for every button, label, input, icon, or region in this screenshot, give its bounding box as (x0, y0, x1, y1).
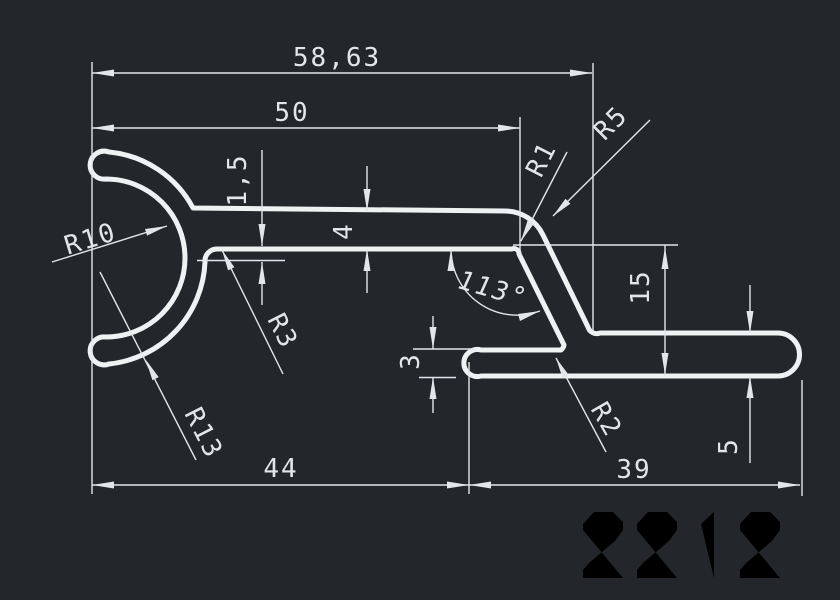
dim-label-base-right: 39 (616, 455, 651, 485)
dim-upper-width: 50 (92, 98, 520, 132)
profile-outline (90, 151, 799, 376)
radius-label-r1: R1 (520, 137, 563, 182)
radius-label-r10: R10 (61, 217, 120, 261)
dim-lip-thickness: 3 (396, 316, 437, 413)
arrowhead-right (498, 125, 520, 132)
dim-label-wall-gap: 1,5 (223, 154, 253, 207)
dim-wall-gap: 1,5 (223, 150, 266, 305)
arrowhead (553, 199, 570, 216)
radius-r10: R10 (52, 217, 167, 262)
dim-label-arm-height: 4 (329, 222, 359, 240)
dim-label-angle: 113° (452, 266, 532, 313)
arrowhead-up (364, 249, 371, 271)
radius-r5: R5 (553, 100, 650, 216)
dim-label-lip-thickness: 3 (396, 352, 426, 370)
arrowhead-bottom (518, 311, 540, 321)
part-number (583, 512, 780, 578)
arrowhead-right (447, 482, 469, 489)
drawing-canvas[interactable]: 58,63 50 44 39 1,5 4 (0, 0, 840, 600)
radius-label-r3: R3 (261, 309, 304, 354)
arrowhead-up (259, 262, 266, 284)
part-number-digit (740, 512, 780, 578)
arrowhead (145, 226, 167, 236)
dim-label-overall-width: 58,63 (293, 43, 381, 73)
arrowhead-left (92, 70, 114, 77)
dim-label-upper-width: 50 (274, 98, 309, 128)
radius-label-r13: R13 (178, 403, 229, 464)
arrowhead-top (448, 249, 455, 271)
arrowhead-down (747, 311, 754, 333)
part-number-digit (637, 512, 677, 578)
radius-r1: R1 (520, 137, 567, 241)
arrowhead-up (747, 376, 754, 398)
radius-r13: R13 (100, 272, 229, 464)
arrowhead-right (570, 70, 592, 77)
part-number-digit (583, 512, 623, 578)
cad-viewport[interactable]: 58,63 50 44 39 1,5 4 (0, 0, 840, 600)
arrowhead-left (469, 482, 491, 489)
arrowhead (146, 360, 159, 380)
arrowhead-left (92, 482, 114, 489)
dim-angle: 113° (448, 249, 541, 321)
arrowhead-left (92, 125, 114, 132)
dim-overall-width: 58,63 (92, 43, 592, 77)
arrowhead-right (778, 482, 800, 489)
dim-label-right-height: 15 (626, 269, 656, 304)
radius-label-r2: R2 (584, 397, 628, 443)
part-number-digit (698, 512, 729, 578)
radius-r2: R2 (556, 358, 628, 452)
profile-path (90, 151, 799, 376)
arrowhead-down (662, 353, 669, 375)
arrowhead-up (430, 377, 437, 399)
radius-label-r5: R5 (588, 100, 634, 146)
arrowhead-down (430, 327, 437, 349)
dim-right-height: 15 (626, 245, 669, 376)
arrowhead-up (662, 247, 669, 269)
dim-label-end-height: 5 (714, 437, 744, 455)
arrowhead (521, 221, 534, 241)
dim-base-left-width: 44 (92, 454, 469, 489)
arrowhead-down (259, 224, 266, 246)
dim-arm-height: 4 (329, 166, 371, 293)
dim-label-base-left: 44 (263, 454, 298, 484)
